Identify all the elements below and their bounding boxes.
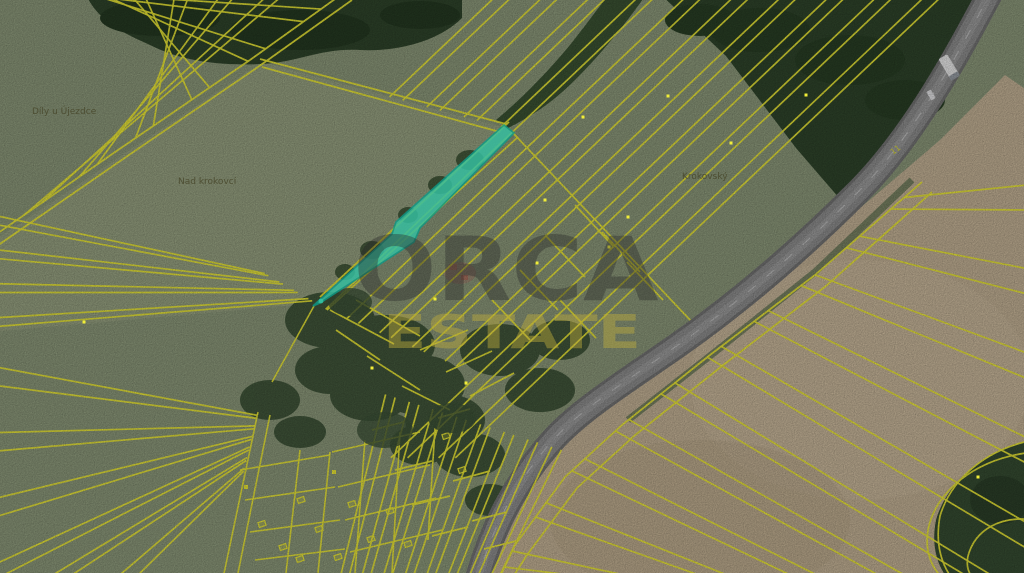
label-krokovsky: Krokovský [682, 172, 728, 182]
watermark-secondary: ESTATE [383, 305, 641, 359]
map-canvas: 11 Díly u Újezdce Nad krokovcí Krokovský… [0, 0, 1024, 573]
label-nad-krokovci: Nad krokovcí [178, 177, 237, 187]
watermark: ORCA ESTATE [354, 218, 659, 359]
label-dily-u-ujezdce: Díly u Újezdce [32, 105, 97, 117]
highlighted-parcel-point [319, 299, 324, 304]
cadastral-map-image[interactable]: 11 Díly u Újezdce Nad krokovcí Krokovský… [0, 0, 1024, 573]
